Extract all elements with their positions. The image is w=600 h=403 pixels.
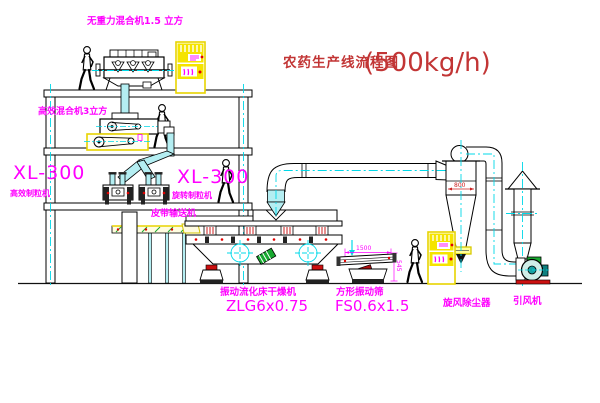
label-granulator-right-name: 旋转制粒机: [171, 190, 212, 200]
label-granulator-right-model: XL-300: [177, 166, 249, 188]
dim-screen-545: 545: [395, 260, 402, 272]
fluid-bed-dryer: [185, 210, 342, 284]
label-granulator-left-name: 高效制粒机: [10, 188, 50, 198]
flow-diagram-canvas: 无重力混合机1.5 立方 高效混合机3立方 XL-300 高效制粒机 XL-30…: [0, 0, 600, 403]
conveyor-supports: [149, 233, 186, 283]
worker-figure-top-floor: [80, 47, 95, 89]
label-dryer-model: ZLG6x0.75: [226, 297, 308, 315]
label-gravity-mixer: 无重力混合机1.5 立方: [86, 15, 184, 27]
spring-mounts: [204, 226, 328, 235]
dim-screen-1500: 1500: [356, 245, 371, 252]
mixer-discharge-pipe: [121, 84, 129, 115]
label-granulator-left-model: XL-300: [13, 162, 85, 184]
dryer-foot-left: [200, 265, 223, 284]
diagram-title-capacity: (500kg/h): [364, 48, 491, 78]
worker-figure-ground: [408, 240, 423, 282]
label-draft-fan: 引风机: [513, 295, 542, 307]
screen-feed-arrow: [349, 250, 355, 256]
induced-draft-fan: [516, 257, 550, 284]
label-high-eff-mixer: 高效混合机3立方: [38, 105, 107, 117]
dryer-exhaust-duct: [267, 161, 448, 216]
discharge-column: [122, 212, 137, 283]
control-cabinet-ground: [428, 232, 455, 284]
dim-cyclone-800: 800: [454, 182, 466, 189]
control-cabinet-top: [176, 42, 205, 93]
process-flow-drawing: 无重力混合机1.5 立方 高效混合机3立方 XL-300 高效制粒机 XL-30…: [0, 0, 600, 403]
dryer-foot-right: [306, 265, 329, 284]
label-belt-conveyor: 皮带输送机: [150, 207, 196, 219]
label-cyclone: 旋风除尘器: [442, 297, 491, 309]
duct-bottom-elbow: [486, 250, 517, 276]
label-screen-model: FS0.6x1.5: [335, 297, 409, 315]
